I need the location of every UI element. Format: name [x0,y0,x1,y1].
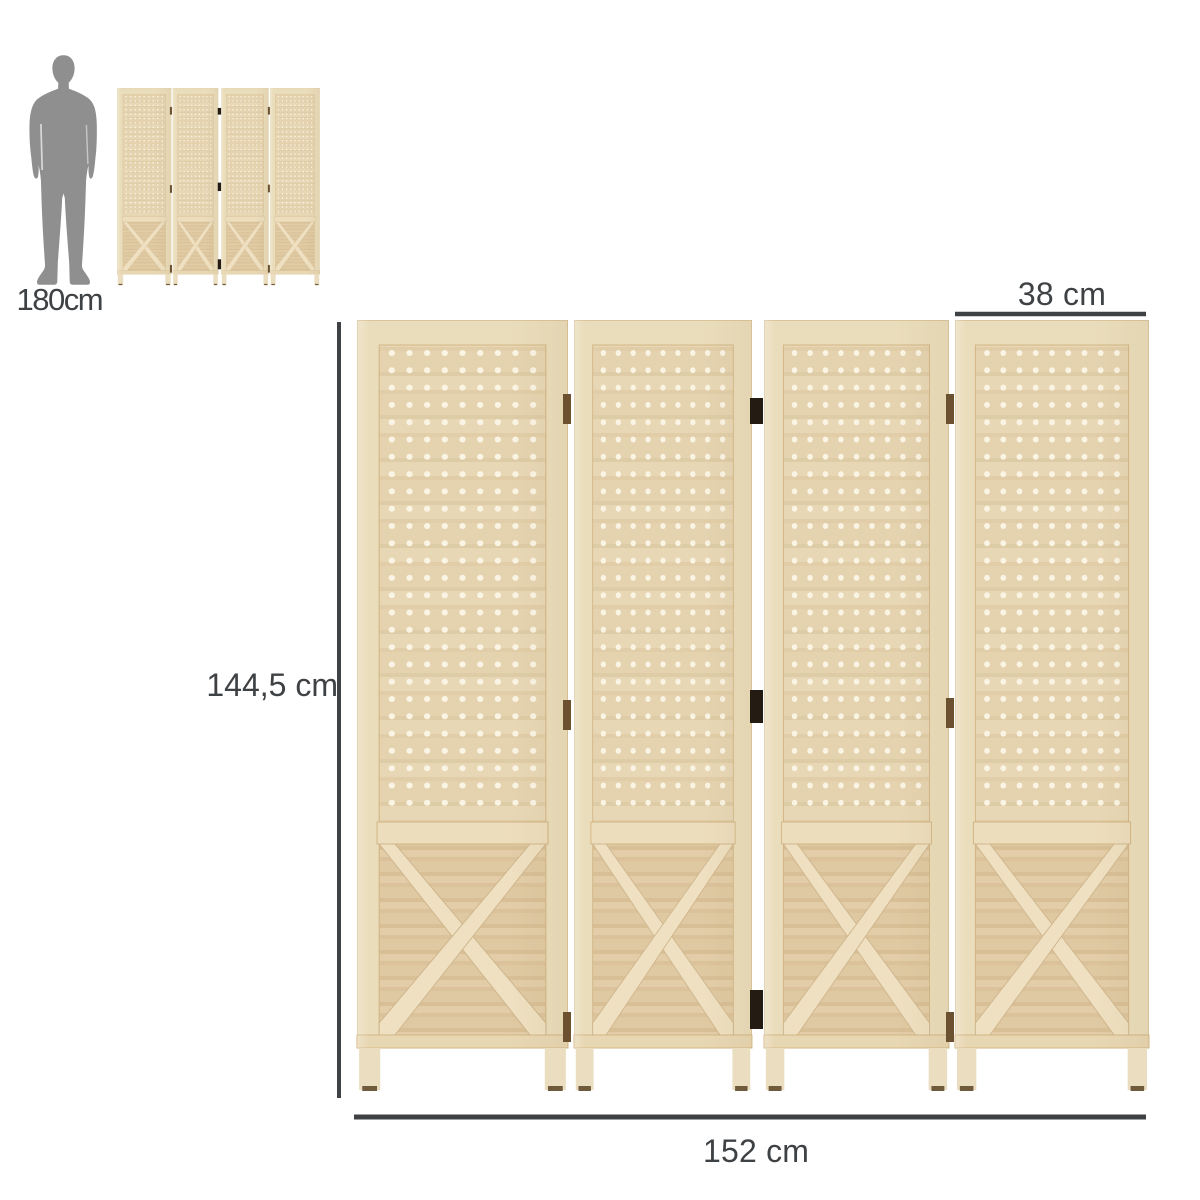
svg-text:38 cm: 38 cm [1018,276,1106,312]
svg-text:144,5 cm: 144,5 cm [206,667,338,703]
svg-text:180cm: 180cm [17,282,103,317]
svg-text:152 cm: 152 cm [703,1133,809,1169]
